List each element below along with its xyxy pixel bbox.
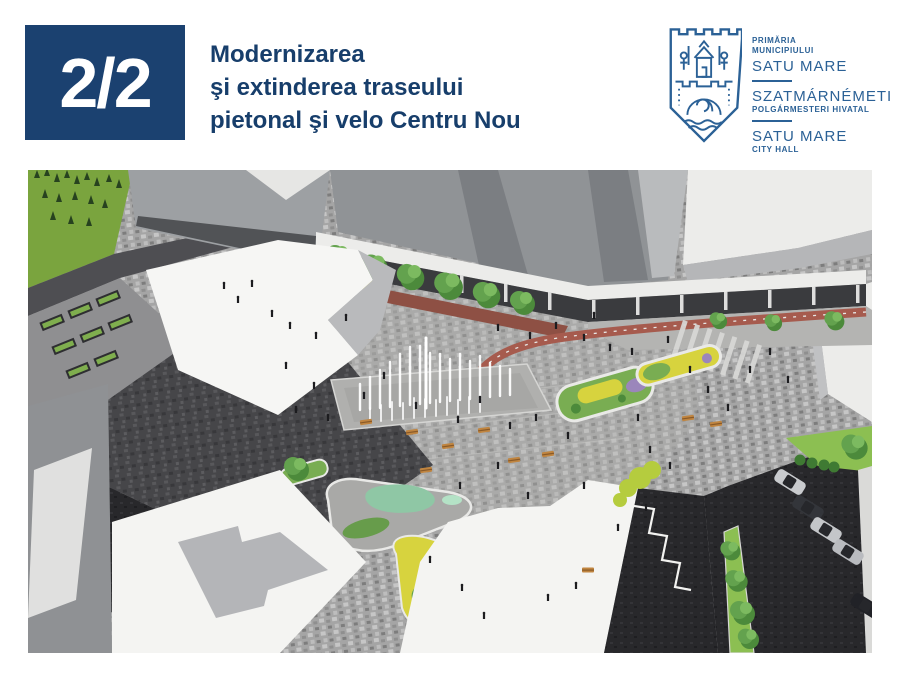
logo-wordmark: PRIMĂRIA MUNICIPIULUI SATU MARE SZATMÁRN… (752, 36, 892, 155)
logo-name-ro: SATU MARE (752, 58, 892, 75)
plaza-rendering-svg (28, 170, 872, 653)
logo-sub-hu: POLGÁRMESTERI HIVATAL (752, 105, 892, 115)
logo-line-primaria: PRIMĂRIA (752, 36, 892, 46)
coat-of-arms-icon (666, 22, 742, 146)
page-title: Modernizarea şi extinderea traseului pie… (210, 38, 521, 137)
logo-name-hu: SZATMÁRNÉMETI (752, 88, 892, 105)
city-hall-logo: PRIMĂRIA MUNICIPIULUI SATU MARE SZATMÁRN… (666, 22, 892, 155)
page-number-text: 2/2 (59, 43, 150, 123)
title-line-1: Modernizarea (210, 38, 521, 71)
title-line-3: pietonal şi velo Centru Nou (210, 104, 521, 137)
title-line-2: şi extinderea traseului (210, 71, 521, 104)
logo-divider-2 (752, 120, 792, 122)
logo-sub-en: CITY HALL (752, 145, 892, 155)
plaza-rendering (28, 170, 872, 653)
logo-line-municipiului: MUNICIPIULUI (752, 46, 892, 56)
logo-divider (752, 80, 792, 82)
logo-name-en: SATU MARE (752, 128, 892, 145)
page-number-badge: 2/2 (25, 25, 185, 140)
presentation-slide: 2/2 Modernizarea şi extinderea traseului… (0, 0, 900, 675)
